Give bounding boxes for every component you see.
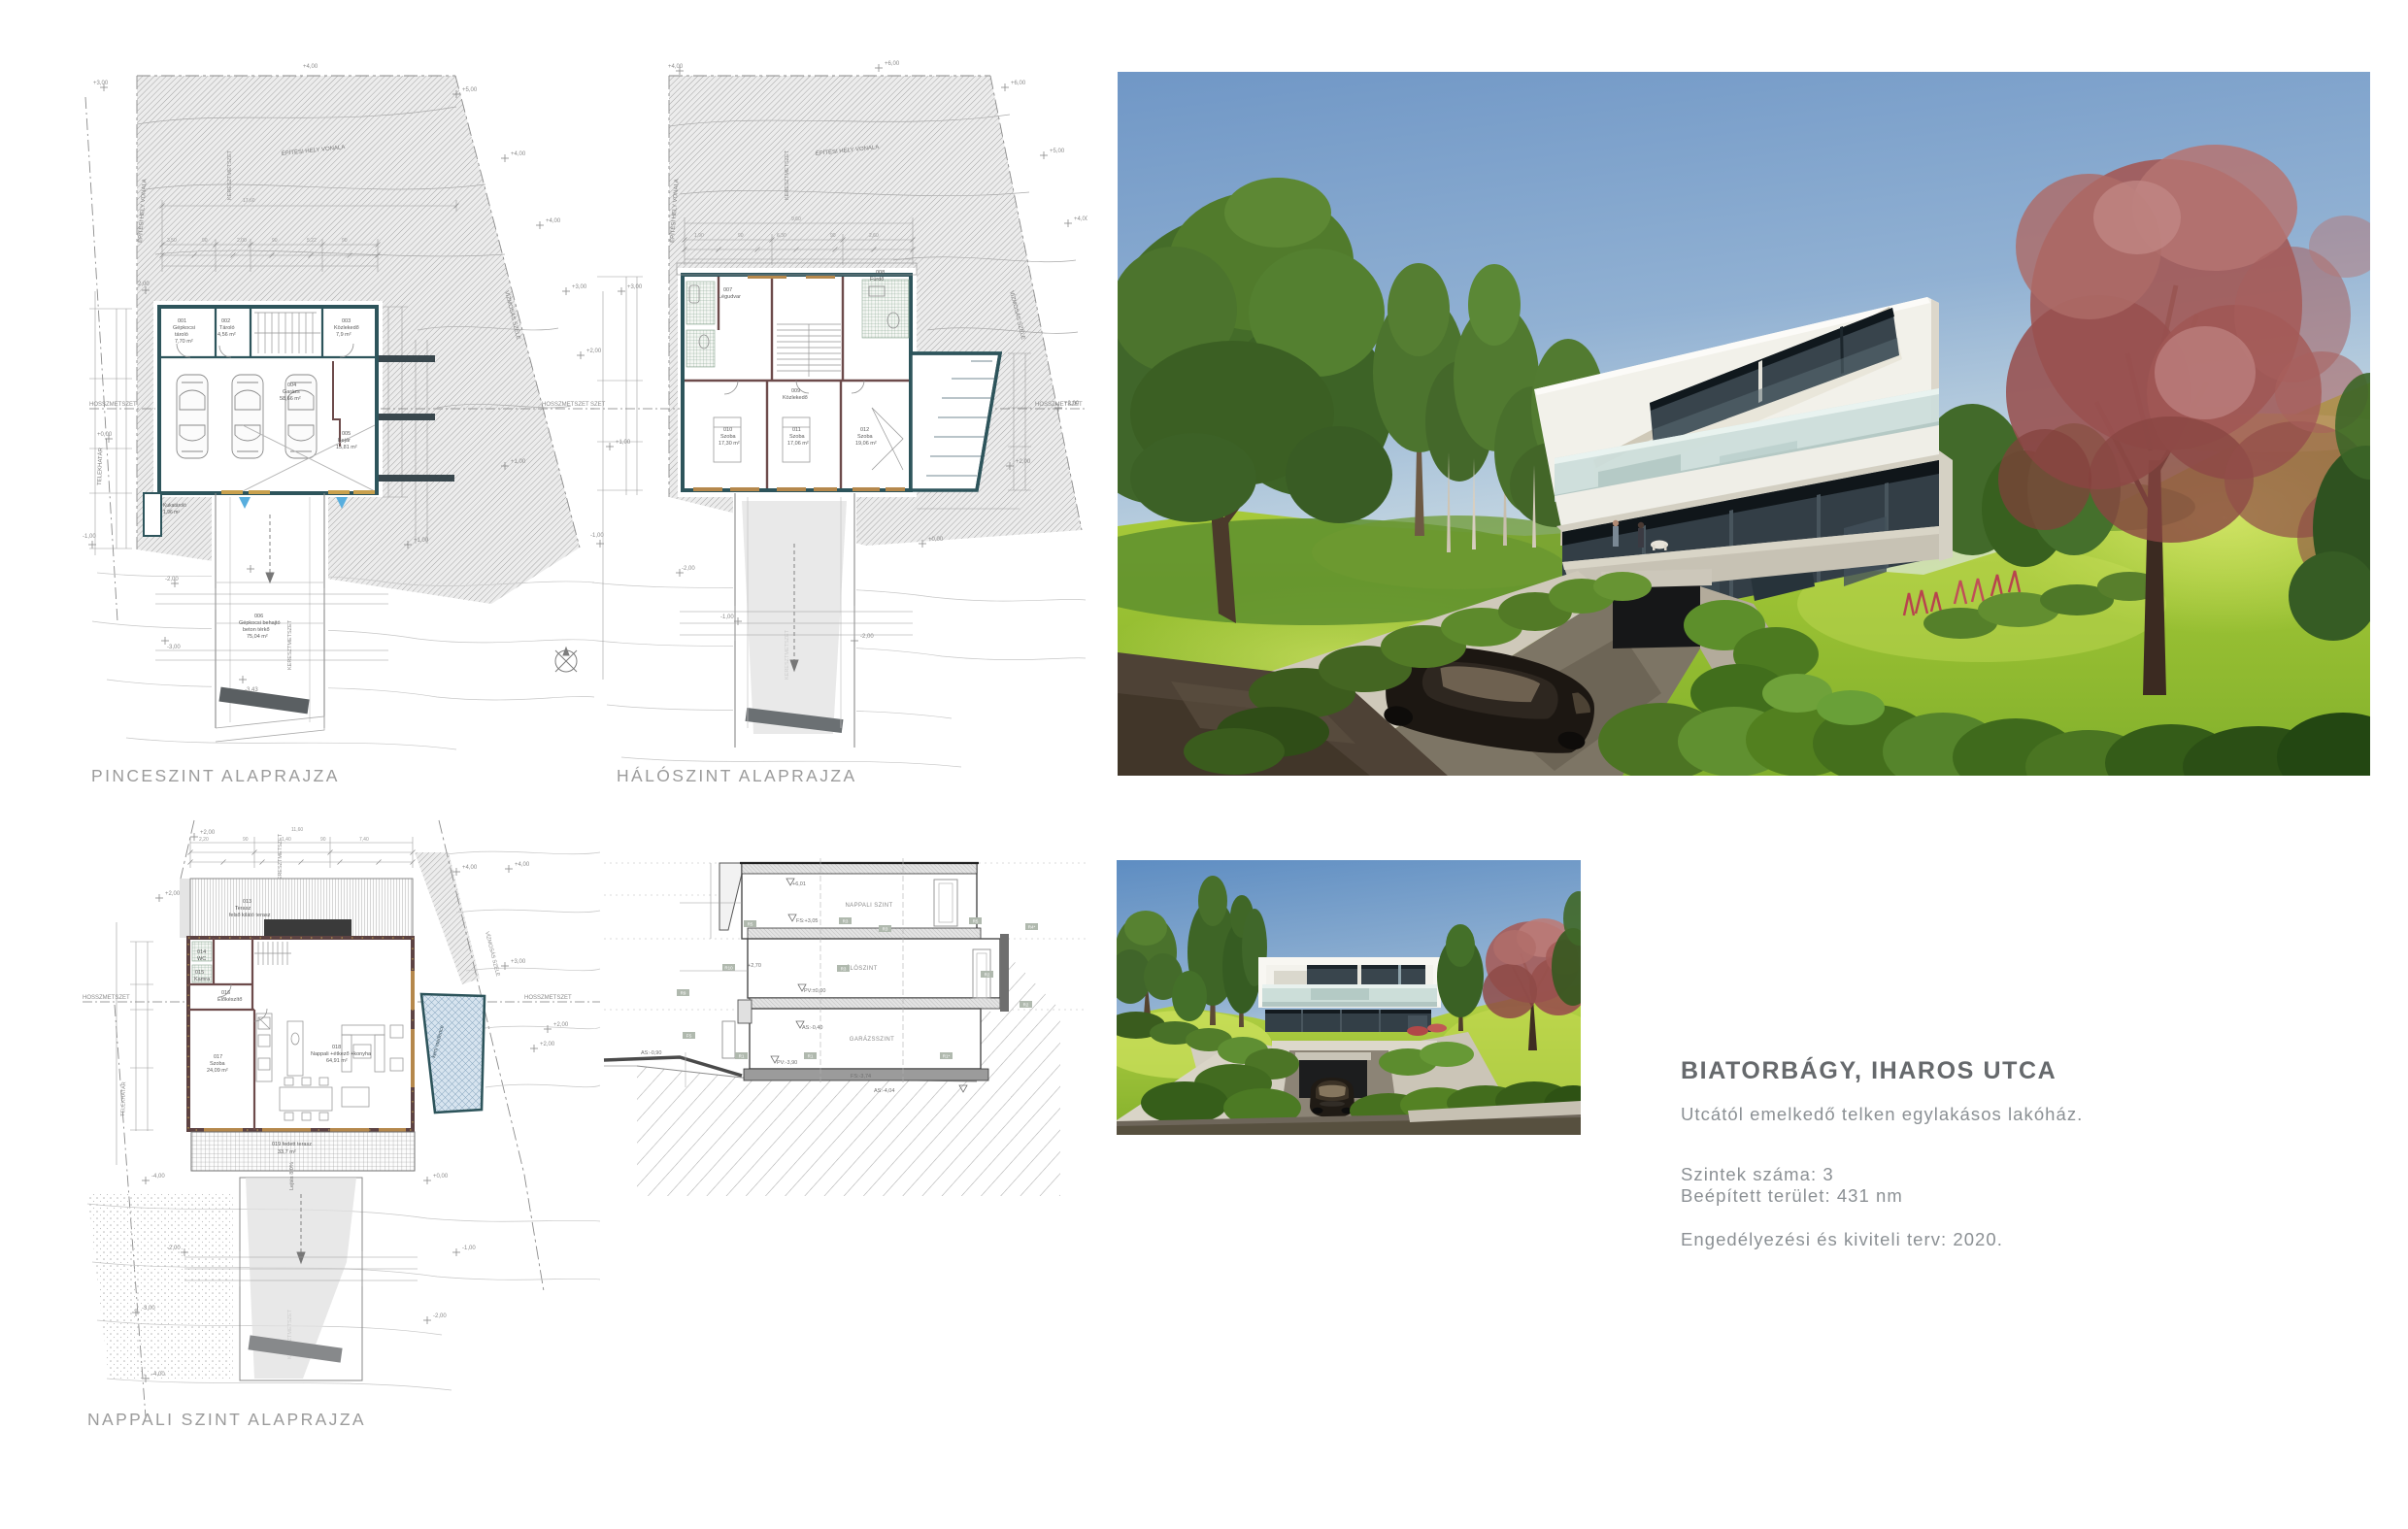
svg-text:003: 003	[342, 318, 351, 324]
svg-text:Közlekedő: Közlekedő	[334, 325, 359, 331]
svg-text:24,09 m²: 24,09 m²	[207, 1068, 228, 1074]
svg-text:+1,00: +1,00	[414, 538, 429, 544]
svg-text:R3: R3	[841, 967, 847, 972]
svg-text:90: 90	[320, 837, 326, 843]
svg-text:Közlekedő: Közlekedő	[783, 395, 808, 401]
svg-text:006: 006	[254, 614, 263, 619]
svg-text:+2,00: +2,00	[553, 1022, 569, 1028]
svg-text:007: 007	[723, 287, 732, 293]
svg-text:+4,00: +4,00	[511, 151, 526, 157]
svg-text:-2,00: -2,00	[136, 282, 150, 287]
svg-text:VÍZMOSÁS SZÉLE: VÍZMOSÁS SZÉLE	[484, 931, 501, 978]
svg-text:+2,70: +2,70	[748, 963, 761, 969]
svg-text:018: 018	[332, 1045, 341, 1050]
svg-text:Szoba: Szoba	[720, 434, 737, 440]
svg-text:Terasz: Terasz	[235, 906, 251, 912]
svg-text:R2: R2	[1023, 1003, 1029, 1008]
svg-text:R5: R5	[748, 922, 753, 927]
svg-text:-4,00: -4,00	[151, 1174, 165, 1180]
svg-text:+2,00: +2,00	[1016, 459, 1031, 465]
svg-text:FS: FS	[686, 1034, 692, 1039]
svg-text:Kukatároló: Kukatároló	[163, 503, 186, 509]
svg-text:013: 013	[243, 899, 251, 905]
svg-text:5,22: 5,22	[307, 238, 317, 244]
svg-text:017: 017	[214, 1054, 222, 1060]
svg-text:+2,00: +2,00	[200, 830, 216, 836]
svg-text:R1: R1	[808, 1054, 814, 1059]
svg-text:+6,00: +6,00	[1011, 81, 1026, 86]
svg-text:FS:-3,74: FS:-3,74	[851, 1074, 871, 1080]
svg-text:-2,00: -2,00	[167, 1246, 181, 1251]
svg-text:R5: R5	[973, 919, 979, 924]
svg-text:+0,00: +0,00	[97, 432, 113, 438]
svg-text:+4,00: +4,00	[668, 64, 684, 70]
svg-text:64,91 m²: 64,91 m²	[326, 1058, 348, 1064]
svg-text:Gépkocsi: Gépkocsi	[173, 325, 195, 331]
svg-text:+0,00: +0,00	[433, 1174, 449, 1180]
svg-text:9,60: 9,60	[791, 216, 801, 222]
svg-text:11,60: 11,60	[291, 827, 303, 833]
svg-text:7,40: 7,40	[359, 837, 369, 843]
svg-text:Szoba: Szoba	[210, 1061, 226, 1067]
svg-text:R10: R10	[724, 966, 733, 971]
svg-text:2,20: 2,20	[199, 837, 209, 843]
svg-text:+4,00: +4,00	[546, 218, 561, 224]
svg-text:+6,00: +6,00	[885, 61, 900, 67]
svg-text:7,9 m²: 7,9 m²	[336, 332, 351, 338]
svg-text:+3,00: +3,00	[511, 959, 526, 965]
svg-text:+4,00: +4,00	[1074, 216, 1087, 222]
svg-text:+4,00: +4,00	[462, 865, 478, 871]
svg-text:+2,00: +2,00	[1064, 401, 1080, 407]
svg-text:33,7 m²: 33,7 m²	[278, 1149, 296, 1155]
svg-text:2,60: 2,60	[869, 233, 879, 239]
svg-text:AS:-0,40: AS:-0,40	[802, 1025, 822, 1031]
svg-text:R1*: R1*	[943, 1054, 951, 1059]
svg-text:75,04 m²: 75,04 m²	[247, 634, 268, 640]
svg-text:012: 012	[860, 427, 869, 433]
svg-text:Gépkocsi behajtó: Gépkocsi behajtó	[239, 620, 281, 626]
svg-text:4,56 m²: 4,56 m²	[217, 332, 236, 338]
svg-text:TELEKHATÁR: TELEKHATÁR	[96, 447, 104, 485]
svg-text:90: 90	[202, 238, 208, 244]
svg-text:beton térkő: beton térkő	[243, 627, 270, 633]
svg-text:008: 008	[876, 270, 885, 276]
svg-text:TELEKHATÁR: TELEKHATÁR	[119, 1081, 127, 1116]
svg-text:7,70 m²: 7,70 m²	[175, 339, 193, 345]
svg-text:SZET: SZET	[590, 402, 606, 408]
svg-text:+1,00: +1,00	[511, 459, 526, 465]
svg-text:-1,00: -1,00	[720, 615, 734, 620]
svg-text:010: 010	[723, 427, 732, 433]
svg-text:011: 011	[792, 427, 801, 433]
svg-text:GARÁZSSZINT: GARÁZSSZINT	[850, 1036, 894, 1043]
svg-text:-2,00: -2,00	[682, 566, 695, 572]
svg-text:-3,43: -3,43	[245, 687, 258, 693]
svg-text:005: 005	[342, 431, 351, 437]
svg-text:-1,00: -1,00	[590, 533, 604, 539]
svg-text:90: 90	[243, 837, 249, 843]
svg-text:15,81 m²: 15,81 m²	[336, 445, 357, 450]
svg-text:001: 001	[178, 318, 186, 324]
svg-text:1,96 m²: 1,96 m²	[163, 510, 180, 515]
svg-text:Garázs: Garázs	[283, 389, 300, 395]
svg-text:6,30: 6,30	[777, 233, 786, 239]
svg-text:3,50: 3,50	[167, 238, 177, 244]
svg-text:-3,00: -3,00	[142, 1306, 155, 1312]
svg-text:Tároló: Tároló	[219, 325, 235, 331]
svg-text:KERESZTMETSZET: KERESZTMETSZET	[278, 833, 284, 883]
svg-text:AS:-4,04: AS:-4,04	[874, 1088, 894, 1094]
svg-text:R2: R2	[985, 973, 990, 978]
svg-text:R3: R3	[883, 927, 888, 932]
svg-text:002: 002	[221, 318, 230, 324]
svg-text:014: 014	[197, 949, 206, 955]
svg-text:Légudvar: Légudvar	[719, 294, 741, 300]
svg-text:+4,00: +4,00	[515, 862, 530, 868]
svg-text:R3: R3	[843, 919, 849, 924]
svg-text:+1,00: +1,00	[616, 440, 631, 446]
svg-text:009: 009	[791, 388, 800, 394]
svg-text:Előkészítő: Előkészítő	[217, 997, 242, 1003]
svg-text:+6,01: +6,01	[792, 881, 806, 887]
svg-text:PV:-3,90: PV:-3,90	[777, 1060, 797, 1066]
svg-text:+2,00: +2,00	[165, 891, 181, 897]
svg-text:Nappali +étkező +konyha: Nappali +étkező +konyha	[311, 1051, 372, 1057]
svg-text:+2,00: +2,00	[540, 1042, 555, 1047]
svg-text:1,90: 1,90	[694, 233, 704, 239]
svg-text:-3,00: -3,00	[167, 645, 181, 650]
svg-text:R1: R1	[739, 1054, 745, 1059]
svg-text:AS:-0,90: AS:-0,90	[641, 1050, 661, 1056]
svg-text:tároló: tároló	[175, 332, 188, 338]
svg-text:Szoba: Szoba	[857, 434, 874, 440]
svg-text:Bejár: Bejár	[338, 438, 351, 444]
svg-text:WC: WC	[197, 956, 206, 962]
svg-text:R9: R9	[681, 991, 686, 996]
svg-text:HOSSZMETSZET: HOSSZMETSZET	[89, 402, 137, 408]
svg-text:HOSSZMETSZET: HOSSZMETSZET	[524, 995, 572, 1001]
svg-text:-1,00: -1,00	[83, 534, 96, 540]
svg-text:90: 90	[738, 233, 744, 239]
svg-text:-2,00: -2,00	[433, 1313, 447, 1319]
svg-text:KERESZTMETSZET: KERESZTMETSZET	[785, 150, 790, 200]
svg-text:004: 004	[287, 382, 296, 388]
svg-text:016: 016	[221, 990, 230, 996]
svg-text:Lejtés 8,0%: Lejtés 8,0%	[289, 1162, 295, 1190]
svg-text:PV:±0,00: PV:±0,00	[804, 988, 825, 994]
svg-text:-4,00: -4,00	[151, 1372, 165, 1378]
svg-text:FS:+3,05: FS:+3,05	[796, 918, 818, 924]
svg-text:015: 015	[195, 970, 204, 976]
svg-text:90: 90	[272, 238, 278, 244]
svg-text:90: 90	[830, 233, 836, 239]
svg-text:19,06 m²: 19,06 m²	[855, 441, 877, 447]
svg-text:+5,00: +5,00	[462, 87, 478, 93]
svg-text:KERESZTMETSZET: KERESZTMETSZET	[227, 150, 233, 200]
svg-text:-2,00: -2,00	[860, 634, 874, 640]
svg-text:Szoba: Szoba	[789, 434, 806, 440]
svg-text:KERESZTMETSZET: KERESZTMETSZET	[287, 619, 293, 670]
svg-text:17,30 m²: 17,30 m²	[719, 441, 740, 447]
svg-text:NAPPALI SZINT: NAPPALI SZINT	[845, 903, 892, 909]
svg-text:Kamra: Kamra	[194, 977, 211, 982]
svg-text:+3,00: +3,00	[627, 284, 643, 290]
svg-text:-2,00: -2,00	[165, 577, 179, 582]
svg-text:17,60: 17,60	[243, 198, 255, 204]
svg-text:2,00: 2,00	[237, 238, 247, 244]
svg-text:+4,00: +4,00	[303, 64, 318, 70]
svg-text:90: 90	[342, 238, 348, 244]
svg-text:+0,00: +0,00	[928, 537, 944, 543]
svg-text:+5,00: +5,00	[1050, 149, 1065, 154]
svg-text:HOSSZMETSZET: HOSSZMETSZET	[83, 995, 130, 1001]
svg-text:17,06 m²: 17,06 m²	[787, 441, 809, 447]
svg-text:+3,00: +3,00	[93, 81, 109, 86]
svg-text:-1,00: -1,00	[462, 1246, 476, 1251]
svg-text:Fürdő: Fürdő	[870, 277, 884, 283]
svg-text:019 fedett terasz: 019 fedett terasz	[272, 1142, 312, 1147]
svg-text:58,66 m²: 58,66 m²	[280, 396, 301, 402]
svg-text:R4*: R4*	[1028, 925, 1036, 930]
svg-text:felső kilátó terasz: felső kilátó terasz	[229, 913, 271, 918]
